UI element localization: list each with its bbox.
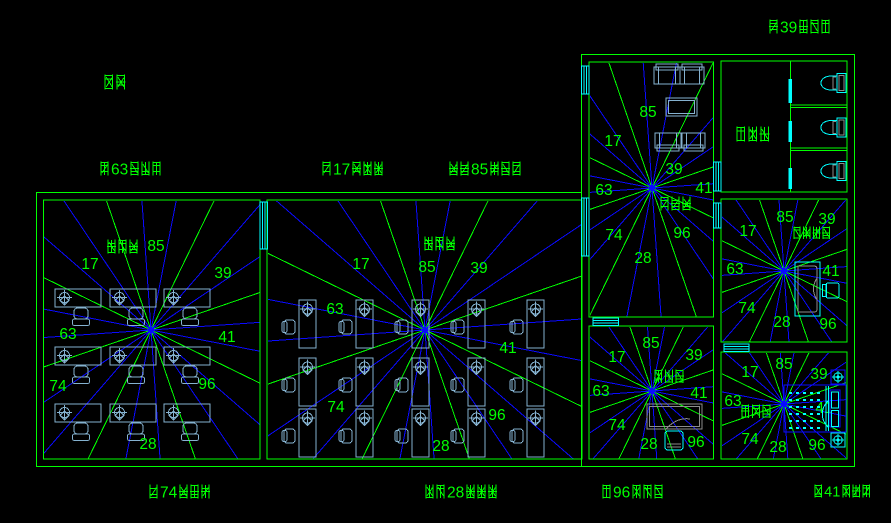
svg-text:41: 41 bbox=[499, 340, 516, 357]
svg-text:85: 85 bbox=[775, 356, 792, 373]
svg-text:17: 17 bbox=[608, 349, 625, 366]
svg-text:17: 17 bbox=[352, 256, 369, 273]
svg-text:41: 41 bbox=[690, 385, 707, 402]
svg-text:39: 39 bbox=[818, 211, 835, 228]
svg-text:17: 17 bbox=[739, 223, 756, 240]
svg-text:41: 41 bbox=[218, 329, 235, 346]
svg-text:85: 85 bbox=[639, 104, 656, 121]
svg-text:41: 41 bbox=[695, 180, 712, 197]
svg-text:39: 39 bbox=[665, 161, 682, 178]
svg-text:28: 28 bbox=[432, 438, 449, 455]
svg-text:96: 96 bbox=[198, 376, 215, 393]
svg-text:85: 85 bbox=[471, 162, 488, 179]
svg-text:74: 74 bbox=[160, 485, 178, 502]
svg-text:28: 28 bbox=[447, 485, 464, 502]
svg-text:96: 96 bbox=[673, 225, 690, 242]
svg-text:96: 96 bbox=[488, 407, 505, 424]
svg-text:96: 96 bbox=[819, 316, 836, 333]
svg-text:96: 96 bbox=[687, 434, 704, 451]
svg-text:85: 85 bbox=[147, 238, 164, 255]
svg-text:74: 74 bbox=[605, 227, 623, 244]
svg-text:63: 63 bbox=[592, 383, 609, 400]
svg-text:85: 85 bbox=[642, 335, 659, 352]
svg-text:41: 41 bbox=[822, 263, 839, 280]
svg-text:39: 39 bbox=[685, 347, 702, 364]
svg-text:28: 28 bbox=[634, 250, 651, 267]
svg-text:85: 85 bbox=[776, 209, 793, 226]
svg-text:28: 28 bbox=[769, 439, 786, 456]
svg-text:63: 63 bbox=[595, 182, 612, 199]
svg-text:85: 85 bbox=[418, 259, 435, 276]
svg-text:63: 63 bbox=[59, 326, 76, 343]
svg-text:63: 63 bbox=[724, 393, 741, 410]
svg-text:28: 28 bbox=[640, 436, 657, 453]
svg-text:96: 96 bbox=[808, 437, 825, 454]
svg-text:74: 74 bbox=[327, 399, 345, 416]
svg-text:74: 74 bbox=[738, 300, 756, 317]
svg-text:63: 63 bbox=[326, 301, 343, 318]
svg-text:74: 74 bbox=[49, 378, 67, 395]
svg-text:63: 63 bbox=[726, 261, 743, 278]
svg-text:63: 63 bbox=[111, 162, 128, 179]
svg-text:39: 39 bbox=[810, 366, 827, 383]
svg-text:17: 17 bbox=[741, 364, 758, 381]
svg-text:28: 28 bbox=[773, 314, 790, 331]
svg-text:74: 74 bbox=[608, 417, 626, 434]
svg-text:39: 39 bbox=[470, 260, 487, 277]
svg-text:17: 17 bbox=[333, 162, 350, 179]
svg-text:41: 41 bbox=[824, 485, 840, 501]
svg-text:17: 17 bbox=[604, 133, 621, 150]
svg-text:28: 28 bbox=[139, 436, 156, 453]
svg-text:74: 74 bbox=[741, 431, 759, 448]
svg-text:39: 39 bbox=[780, 20, 797, 37]
svg-text:39: 39 bbox=[214, 265, 231, 282]
svg-text:96: 96 bbox=[613, 485, 630, 502]
svg-text:17: 17 bbox=[81, 256, 98, 273]
